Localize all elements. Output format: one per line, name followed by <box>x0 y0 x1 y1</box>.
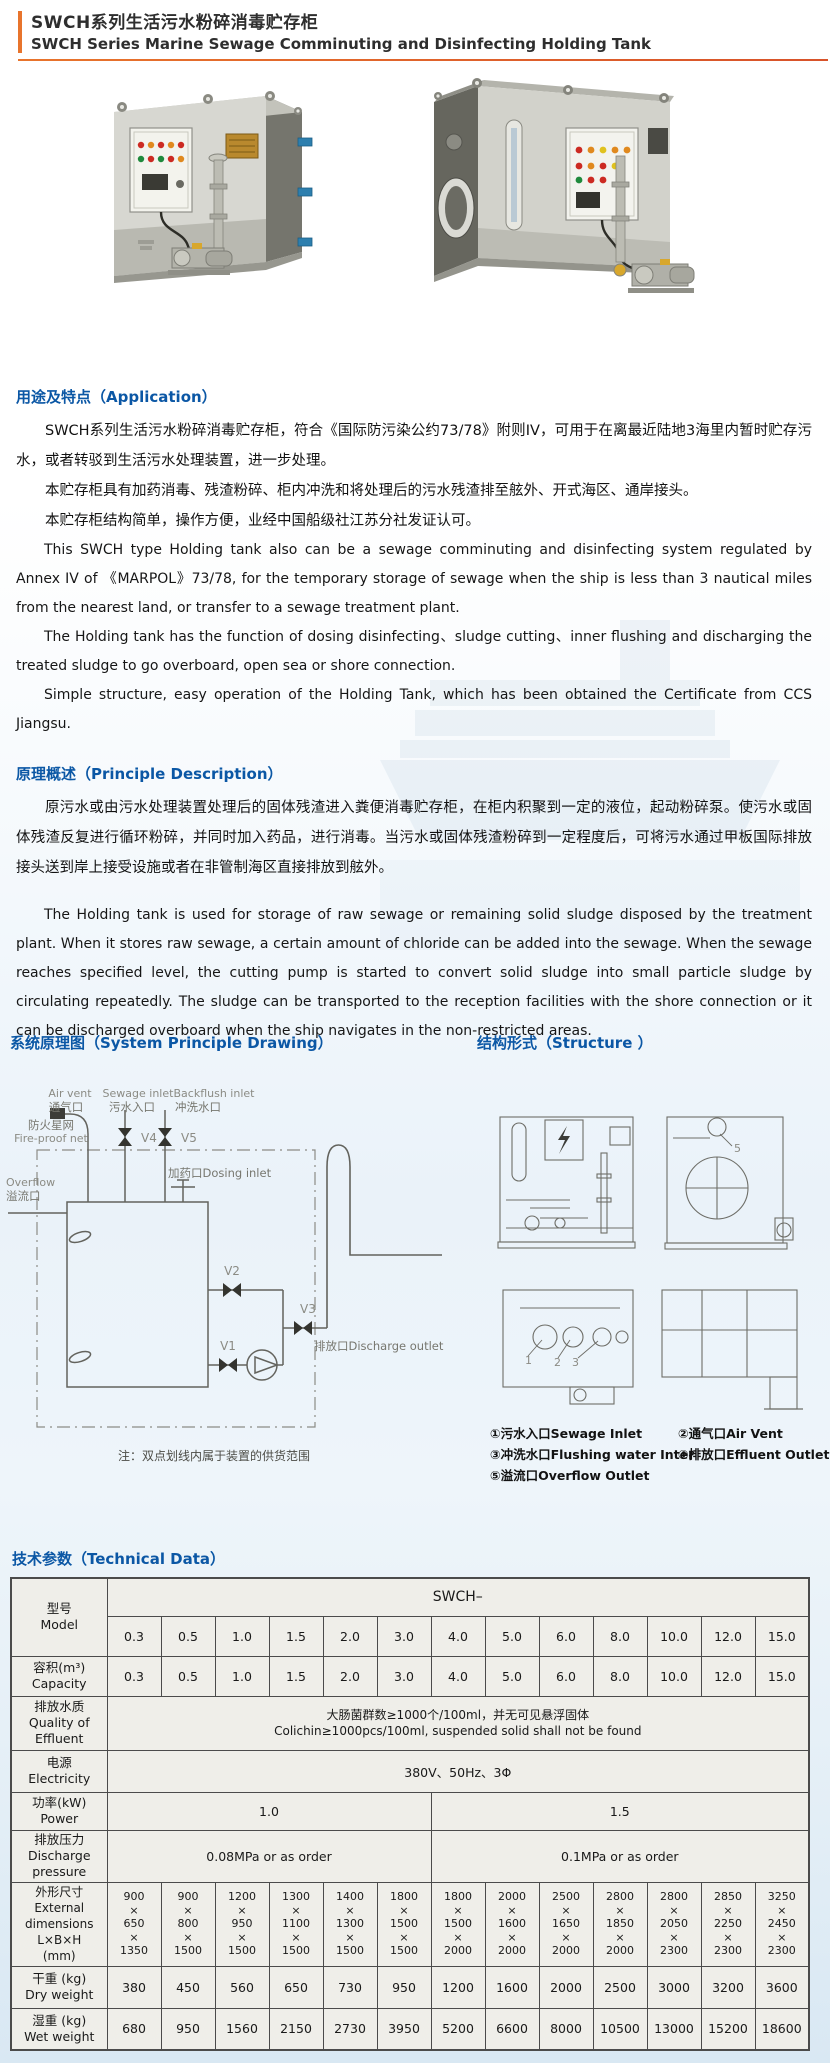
catalog-page: SWCH系列生活污水粉碎消毒贮存柜 SWCH Series Marine Sew… <box>0 0 830 2063</box>
legend-item-flushing-water: ③冲洗水口Flushing water Inter <box>490 1445 674 1464</box>
valve-v3-symbol <box>294 1321 312 1335</box>
rear-view-outline <box>662 1290 797 1377</box>
capacity-cell: 8.0 <box>593 1656 647 1696</box>
pump-assembly <box>628 259 694 293</box>
product-photo-left <box>88 62 354 306</box>
model-cell: 0.3 <box>107 1616 161 1656</box>
fireproof-label-en: Fire-proof net <box>14 1132 88 1145</box>
valve-v2-label: V2 <box>224 1264 240 1278</box>
dimension-cell: 2800 × 1850 × 2000 <box>593 1882 647 1966</box>
table-row-capacity: 容积(m³) Capacity 0.30.51.01.52.03.04.05.0… <box>11 1656 809 1696</box>
model-cell: 3.0 <box>377 1616 431 1656</box>
dimension-cell: 900 × 650 × 1350 <box>107 1882 161 1966</box>
tank-outline <box>67 1202 208 1387</box>
dry-weight-cell: 450 <box>161 1966 215 2008</box>
legend-item-air-vent: ②通气口Air Vent <box>678 1424 829 1443</box>
backflush-inlet-label-en: Backflush inlet <box>174 1087 256 1100</box>
dimension-cell: 2000 × 1600 × 2000 <box>485 1882 539 1966</box>
dimension-cell: 900 × 800 × 1500 <box>161 1882 215 1966</box>
effluent-quality-cell: 大肠菌群数≥1000个/100ml，并无可见悬浮固体 Colichin≥1000… <box>107 1696 809 1750</box>
dimension-cell: 1200 × 950 × 1500 <box>215 1882 269 1966</box>
legend-item-effluent-outlet: ④排放口Effluent Outlet <box>678 1445 829 1464</box>
row-label-pressure: 排放压力 Discharge pressure <box>11 1830 107 1882</box>
fireproof-label-zh: 防火星网 <box>28 1118 74 1132</box>
table-row-series: 型号 Model SWCH– <box>11 1578 809 1616</box>
overflow-label-zh: 溢流口 <box>6 1189 41 1203</box>
supply-boundary-dashed <box>37 1150 315 1427</box>
model-cell: 5.0 <box>485 1616 539 1656</box>
side-view-outline <box>667 1117 783 1243</box>
wet-weight-cell: 3950 <box>377 2008 431 2050</box>
structure-figure: 1 2 3 5 <box>420 1078 820 1423</box>
row-label-electricity: 电源 Electricity <box>11 1750 107 1792</box>
dimension-cell: 1300 × 1100 × 1500 <box>269 1882 323 1966</box>
pressure-cell: 0.08MPa or as order <box>107 1830 431 1882</box>
dry-weight-cell: 3600 <box>755 1966 809 2008</box>
page-title-en: SWCH Series Marine Sewage Comminuting an… <box>31 35 812 53</box>
dimension-cell: 1800 × 1500 × 1500 <box>377 1882 431 1966</box>
title-block: SWCH系列生活污水粉碎消毒贮存柜 SWCH Series Marine Sew… <box>18 8 812 53</box>
application-paragraph-zh: 本贮存柜结构简单，操作方便，业经中国船级社江苏分社发证认可。 <box>16 506 812 536</box>
table-row-power: 功率(kW) Power 1.01.5 <box>11 1792 809 1830</box>
wet-weight-cell: 8000 <box>539 2008 593 2050</box>
dry-weight-cell: 380 <box>107 1966 161 2008</box>
series-header-cell: SWCH– <box>107 1578 809 1616</box>
dry-weight-cell: 1600 <box>485 1966 539 2008</box>
dry-weight-cell: 560 <box>215 1966 269 2008</box>
technical-data-heading: 技术参数（Technical Data） <box>12 1548 820 1569</box>
model-cell: 2.0 <box>323 1616 377 1656</box>
model-cell: 10.0 <box>647 1616 701 1656</box>
model-cell: 12.0 <box>701 1616 755 1656</box>
sewage-inlet-label-zh: 污水入口 <box>109 1100 155 1114</box>
side-hatch <box>438 178 474 238</box>
row-label-dry-weight: 干重 (kg) Dry weight <box>11 1966 107 2008</box>
application-paragraph-zh: 本贮存柜具有加药消毒、残渣粉碎、柜内冲洗和将处理后的污水残渣排至舷外、开式海区、… <box>16 476 812 506</box>
principle-heading: 原理概述（Principle Description） <box>16 763 812 784</box>
title-accent-bar <box>18 11 22 53</box>
wet-weight-cell: 18600 <box>755 2008 809 2050</box>
table-row-effluent: 排放水质 Quality of Effluent 大肠菌群数≥1000个/100… <box>11 1696 809 1750</box>
model-cell: 1.0 <box>215 1616 269 1656</box>
dimension-cell: 3250 × 2450 × 2300 <box>755 1882 809 1966</box>
valve-v4-label: V4 <box>141 1131 157 1145</box>
application-paragraph-en: Simple structure, easy operation of the … <box>16 681 812 739</box>
figure-label-2: 2 <box>554 1356 561 1369</box>
dosing-inlet-label: 加药口Dosing inlet <box>168 1166 272 1180</box>
backflush-inlet-label-zh: 冲洗水口 <box>175 1100 221 1114</box>
capacity-cell: 10.0 <box>647 1656 701 1696</box>
capacity-cell: 2.0 <box>323 1656 377 1696</box>
application-paragraph-en: The Holding tank has the function of dos… <box>16 623 812 681</box>
table-row-dimensions: 外形尺寸 External dimensions L×B×H (mm) 900 … <box>11 1882 809 1966</box>
capacity-cell: 15.0 <box>755 1656 809 1696</box>
valve-v5-label: V5 <box>181 1131 197 1145</box>
dry-weight-cell: 650 <box>269 1966 323 2008</box>
structure-heading: 结构形式（Structure ） <box>477 1032 653 1053</box>
wet-weight-cell: 15200 <box>701 2008 755 2050</box>
dimension-cell: 2800 × 2050 × 2300 <box>647 1882 701 1966</box>
power-cell: 1.0 <box>107 1792 431 1830</box>
application-heading: 用途及特点（Application） <box>16 386 812 407</box>
schematic-note: 注：双点划线内属于装置的供货范围 <box>118 1448 310 1463</box>
model-cell: 6.0 <box>539 1616 593 1656</box>
system-drawing-heading: 系统原理图（System Principle Drawing） <box>10 1032 333 1053</box>
row-label-effluent: 排放水质 Quality of Effluent <box>11 1696 107 1750</box>
nameplate <box>226 134 258 158</box>
system-principle-schematic: Air vent 通气口 Sewage inlet 污水入口 Backflush… <box>6 1072 446 1472</box>
pump-triangle <box>255 1357 277 1373</box>
wet-weight-cell: 1560 <box>215 2008 269 2050</box>
power-cell: 1.5 <box>431 1792 809 1830</box>
wet-weight-cell: 2730 <box>323 2008 377 2050</box>
wet-weight-cell: 10500 <box>593 2008 647 2050</box>
dry-weight-cell: 2500 <box>593 1966 647 2008</box>
dimension-cell: 2850 × 2250 × 2300 <box>701 1882 755 1966</box>
sewage-inlet-label-en: Sewage inlet <box>103 1087 175 1100</box>
capacity-cell: 6.0 <box>539 1656 593 1696</box>
table-row-dry-weight: 干重 (kg) Dry weight 380450560650730950120… <box>11 1966 809 2008</box>
structure-legend: ①污水入口Sewage Inlet ②通气口Air Vent ③冲洗水口Flus… <box>490 1424 820 1485</box>
dry-weight-cell: 950 <box>377 1966 431 2008</box>
valve-v1-label: V1 <box>220 1339 236 1353</box>
dimension-cell: 1800 × 1500 × 2000 <box>431 1882 485 1966</box>
technical-data-section: 技术参数（Technical Data） 型号 Model SWCH– 0.30… <box>10 1548 820 2051</box>
wet-weight-cell: 680 <box>107 2008 161 2050</box>
application-paragraph-zh: SWCH系列生活污水粉碎消毒贮存柜，符合《国际防污染公约73/78》附则IV，可… <box>16 416 812 476</box>
row-label-model: 型号 Model <box>11 1578 107 1656</box>
lightning-symbol <box>558 1126 570 1154</box>
capacity-cell: 0.5 <box>161 1656 215 1696</box>
wet-weight-cell: 6600 <box>485 2008 539 2050</box>
top-view-outline <box>503 1290 633 1387</box>
table-row-electricity: 电源 Electricity 380V、50Hz、3Φ <box>11 1750 809 1792</box>
effluent-quality-zh: 大肠菌群数≥1000个/100ml，并无可见悬浮固体 <box>110 1707 807 1723</box>
control-panel <box>130 128 192 212</box>
table-row-pressure: 排放压力 Discharge pressure 0.08MPa or as or… <box>11 1830 809 1882</box>
air-vent-label-en: Air vent <box>48 1087 92 1100</box>
table-row-wet-weight: 湿重 (kg) Wet weight 680950156021502730395… <box>11 2008 809 2050</box>
control-panel <box>566 128 638 220</box>
front-view-outline <box>500 1117 633 1242</box>
table-row-models: 0.30.51.01.52.03.04.05.06.08.010.012.015… <box>11 1616 809 1656</box>
wet-weight-cell: 950 <box>161 2008 215 2050</box>
figure-label-1: 1 <box>525 1354 532 1367</box>
valve-v5-symbol <box>158 1128 172 1146</box>
figure-label-5: 5 <box>734 1142 741 1155</box>
model-cell: 1.5 <box>269 1616 323 1656</box>
valve-v4-symbol <box>118 1128 132 1146</box>
dimension-cell: 2500 × 1650 × 2000 <box>539 1882 593 1966</box>
capacity-cell: 0.3 <box>107 1656 161 1696</box>
cutting-pump <box>247 1350 277 1380</box>
drawings-section: 系统原理图（System Principle Drawing） 结构形式（Str… <box>0 1032 830 1552</box>
dry-weight-cell: 730 <box>323 1966 377 2008</box>
model-cell: 15.0 <box>755 1616 809 1656</box>
principle-paragraph-zh: 原污水或由污水处理装置处理后的固体残渣进入粪便消毒贮存柜，在柜内积聚到一定的液位… <box>16 793 812 883</box>
dimension-cell: 1400 × 1300 × 1500 <box>323 1882 377 1966</box>
page-title-zh: SWCH系列生活污水粉碎消毒贮存柜 <box>31 8 812 33</box>
application-paragraph-en: This SWCH type Holding tank also can be … <box>16 536 812 623</box>
capacity-cell: 3.0 <box>377 1656 431 1696</box>
figure-label-3: 3 <box>572 1356 579 1369</box>
product-photo-right <box>416 58 706 306</box>
pressure-cell: 0.1MPa or as order <box>431 1830 809 1882</box>
wet-weight-cell: 5200 <box>431 2008 485 2050</box>
model-cell: 4.0 <box>431 1616 485 1656</box>
dry-weight-cell: 3000 <box>647 1966 701 2008</box>
row-label-wet-weight: 湿重 (kg) Wet weight <box>11 2008 107 2050</box>
capacity-cell: 1.0 <box>215 1656 269 1696</box>
row-label-capacity: 容积(m³) Capacity <box>11 1656 107 1696</box>
effluent-quality-en: Colichin≥1000pcs/100ml, suspended solid … <box>110 1723 807 1739</box>
capacity-cell: 1.5 <box>269 1656 323 1696</box>
air-vent-label-zh: 通气口 <box>49 1100 84 1114</box>
technical-data-table: 型号 Model SWCH– 0.30.51.01.52.03.04.05.06… <box>10 1577 810 2051</box>
capacity-cell: 5.0 <box>485 1656 539 1696</box>
legend-item-overflow-outlet: ⑤溢流口Overflow Outlet <box>490 1466 674 1485</box>
model-cell: 0.5 <box>161 1616 215 1656</box>
valve-v3-label: V3 <box>300 1302 316 1316</box>
row-label-power: 功率(kW) Power <box>11 1792 107 1830</box>
capacity-cell: 4.0 <box>431 1656 485 1696</box>
wet-weight-cell: 2150 <box>269 2008 323 2050</box>
row-label-dimensions: 外形尺寸 External dimensions L×B×H (mm) <box>11 1882 107 1966</box>
wet-weight-cell: 13000 <box>647 2008 701 2050</box>
overflow-label-en: Overflow <box>6 1176 55 1189</box>
legend-item-sewage-inlet: ①污水入口Sewage Inlet <box>490 1424 674 1443</box>
model-cell: 8.0 <box>593 1616 647 1656</box>
dry-weight-cell: 3200 <box>701 1966 755 2008</box>
principle-paragraph-en: The Holding tank is used for storage of … <box>16 901 812 1046</box>
capacity-cell: 12.0 <box>701 1656 755 1696</box>
dry-weight-cell: 1200 <box>431 1966 485 2008</box>
electricity-cell: 380V、50Hz、3Φ <box>107 1750 809 1792</box>
dosing-inlet-fitting <box>171 1180 195 1202</box>
dry-weight-cell: 2000 <box>539 1966 593 2008</box>
valve-v2-symbol <box>223 1283 241 1297</box>
tank-left <box>114 91 312 283</box>
valve-v1-symbol <box>219 1358 237 1372</box>
tank-right <box>434 78 694 293</box>
body-text-column: 用途及特点（Application） SWCH系列生活污水粉碎消毒贮存柜，符合《… <box>16 386 812 1046</box>
level-gauge <box>506 120 522 230</box>
